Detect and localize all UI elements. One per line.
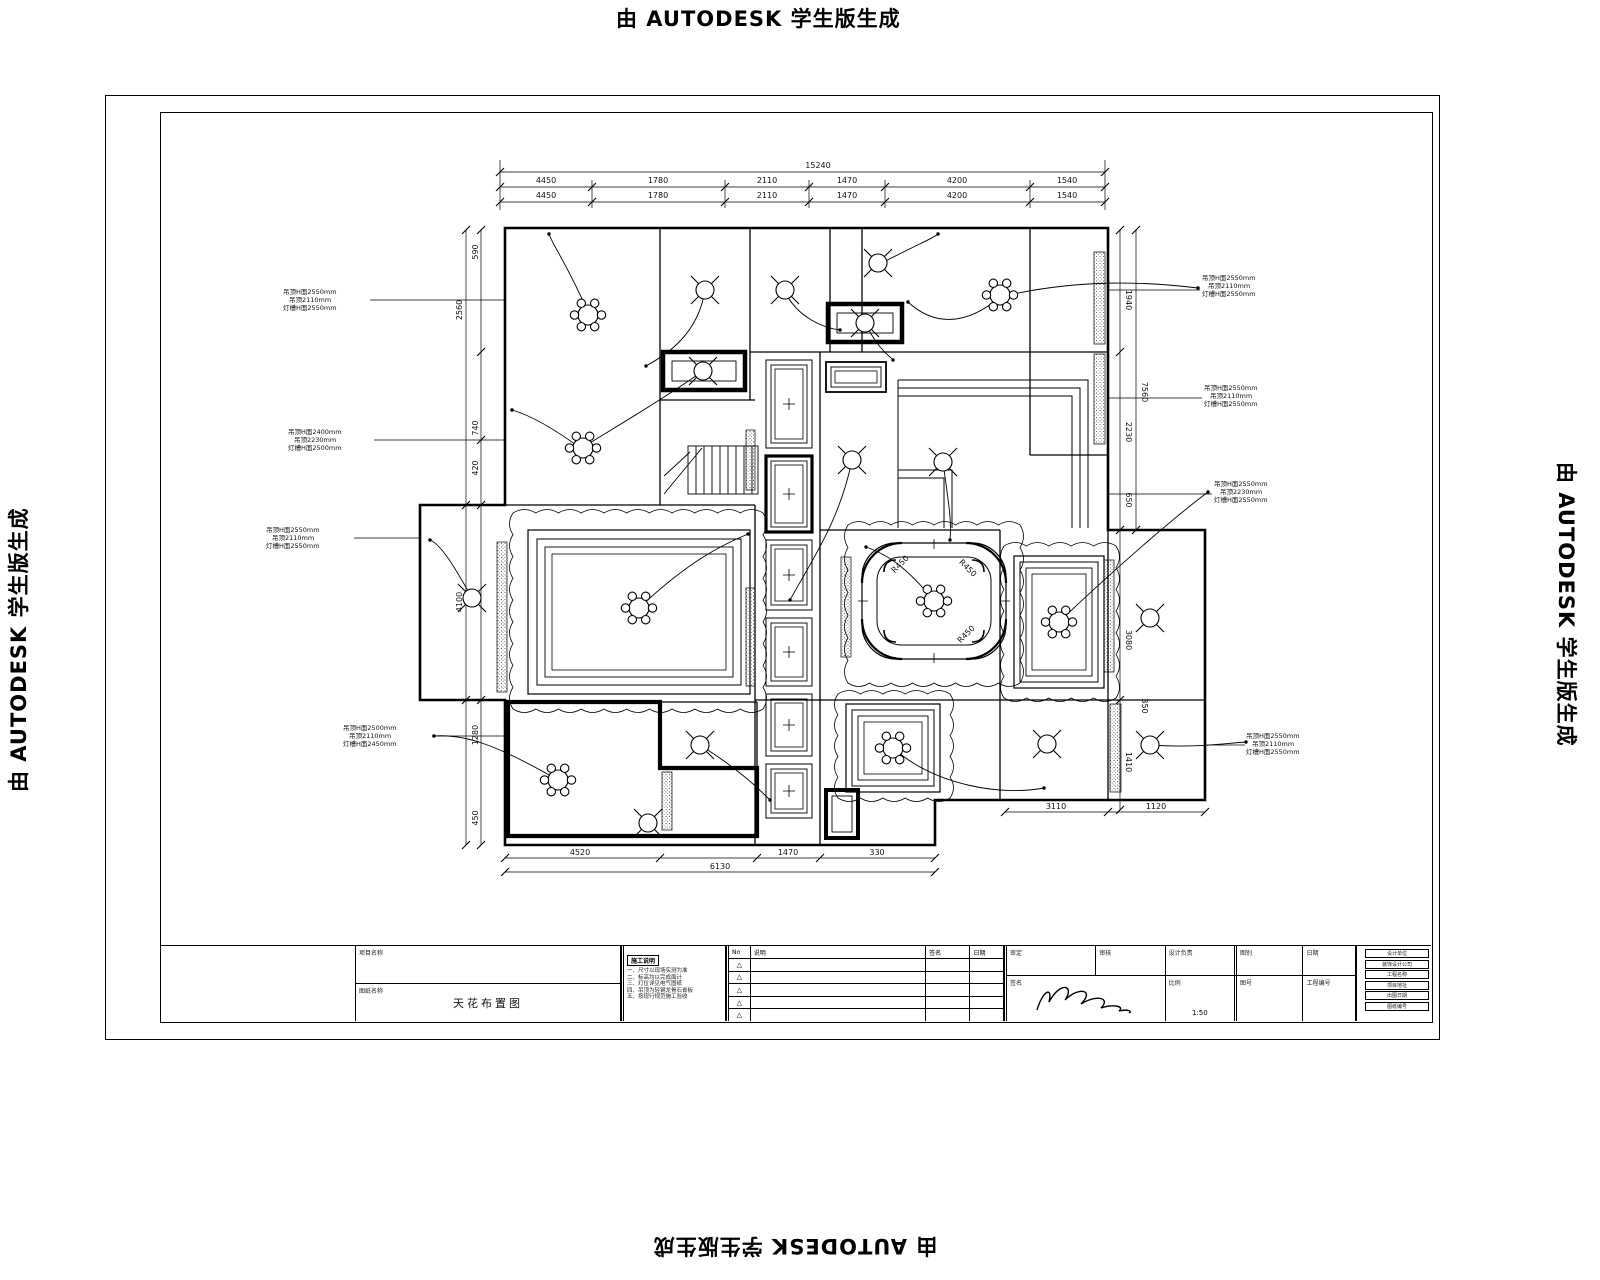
revision-col-desc: 说明 bbox=[751, 946, 926, 958]
approval-cell-图别: 图别 bbox=[1234, 946, 1303, 975]
dimension-text: 2230 bbox=[1124, 422, 1133, 442]
approval-block: 审定审核设计负责图别日期 签名比例1:50图号工程编号 bbox=[1004, 946, 1356, 1021]
signature bbox=[1031, 980, 1141, 1018]
approval-label: 图别 bbox=[1240, 948, 1252, 957]
approval-cell-审核: 审核 bbox=[1096, 946, 1165, 975]
dimension-text: 3110 bbox=[1046, 802, 1066, 811]
approval-label: 设计负责 bbox=[1169, 948, 1193, 957]
approval-label: 审定 bbox=[1010, 948, 1022, 957]
revision-row: △ bbox=[729, 972, 1003, 985]
dimension-text: 1470 bbox=[837, 176, 857, 185]
chandelier-symbol bbox=[570, 299, 605, 331]
dimension-text: 1940 bbox=[1124, 290, 1133, 310]
revision-col-sign: 签名 bbox=[926, 946, 970, 958]
downlight-symbol bbox=[634, 809, 662, 837]
dimension-text: 1120 bbox=[1146, 802, 1166, 811]
corridor-panels bbox=[766, 360, 812, 818]
boxed-vent-units bbox=[663, 304, 902, 838]
cad-plot-page: { "watermark": { "text": "由 AUTODESK 学生版… bbox=[0, 0, 1600, 1280]
approval-cell-审定: 审定 bbox=[1007, 946, 1096, 975]
downlight-symbol bbox=[1136, 731, 1164, 759]
revision-row: △ bbox=[729, 959, 1003, 972]
company-info-row: 出图日期 bbox=[1365, 991, 1429, 1000]
company-info-row: 项目地址 bbox=[1365, 981, 1429, 990]
balcony-heavy-border bbox=[508, 702, 757, 836]
downlight-symbol bbox=[771, 276, 799, 304]
company-info-row: 设计单位 bbox=[1365, 949, 1429, 958]
chandelier-symbol bbox=[916, 585, 951, 617]
approval-cell-工程编号: 工程编号 bbox=[1303, 976, 1355, 1021]
revision-row: △ bbox=[729, 997, 1003, 1010]
dimension-text: 2110 bbox=[757, 191, 777, 200]
dimension-text: 1280 bbox=[471, 725, 480, 745]
revision-triangle-icon: △ bbox=[729, 959, 751, 971]
project-name-label: 项目名称 bbox=[359, 948, 383, 957]
dimension-text: 1470 bbox=[837, 191, 857, 200]
dimension-text: 3080 bbox=[1124, 630, 1133, 650]
drawing-title: 天花布置图 bbox=[453, 995, 523, 1011]
downlight-symbol bbox=[686, 731, 714, 759]
dimension-text: 6130 bbox=[710, 862, 730, 871]
dimension-text: 4100 bbox=[455, 592, 464, 612]
family-room-l-coffer bbox=[898, 380, 1088, 528]
revision-col-no: No bbox=[729, 946, 751, 958]
titleblock-name-cell: 项目名称 图纸名称 天花布置图 bbox=[356, 946, 621, 1021]
approval-cell-设计负责: 设计负责 bbox=[1166, 946, 1235, 975]
approval-label: 工程编号 bbox=[1306, 978, 1330, 987]
downlight-symbol bbox=[691, 276, 719, 304]
revision-header: No 说明 签名 日期 bbox=[729, 946, 1003, 959]
chandelier-symbol bbox=[875, 732, 910, 764]
company-info-row: 工程名称 bbox=[1365, 970, 1429, 979]
titleblock-empty-cell bbox=[161, 946, 356, 1021]
revision-triangle-icon: △ bbox=[729, 972, 751, 984]
dimension-text: 4200 bbox=[947, 176, 967, 185]
approval-value: 1:50 bbox=[1166, 1009, 1234, 1017]
approval-label: 图号 bbox=[1240, 978, 1252, 987]
downlight-symbol bbox=[1136, 604, 1164, 632]
dimension-text: 590 bbox=[471, 244, 480, 259]
dimension-text: 350 bbox=[1140, 698, 1149, 713]
dimension-text: 420 bbox=[471, 460, 480, 475]
approval-label: 审核 bbox=[1099, 948, 1111, 957]
downlight-symbol bbox=[864, 249, 892, 277]
downlight-symbol bbox=[929, 448, 957, 476]
approval-cell-比例: 比例1:50 bbox=[1166, 976, 1235, 1021]
downlight-symbol bbox=[838, 446, 866, 474]
downlight-symbol bbox=[1033, 730, 1061, 758]
revision-row: △ bbox=[729, 984, 1003, 997]
stair bbox=[664, 446, 758, 494]
chandelier-symbol bbox=[540, 764, 575, 796]
dimension-text: 15240 bbox=[805, 161, 830, 170]
dimension-text: 1540 bbox=[1057, 176, 1077, 185]
revision-row: △ bbox=[729, 1009, 1003, 1021]
dimension-text: 1410 bbox=[1124, 752, 1133, 772]
chandelier-symbol bbox=[565, 432, 600, 464]
dimension-text: 4200 bbox=[947, 191, 967, 200]
note-line: 五、按现行规范施工验收 bbox=[627, 994, 722, 1001]
approval-cell-签名: 签名 bbox=[1007, 976, 1166, 1021]
ceiling-plan-drawing: 1524044501780211014704200154044501780211… bbox=[0, 0, 1600, 1280]
construction-notes: 施工说明 一、尺寸以现场实测为准二、标高均以完成面计三、灯位详见电气图纸四、吊顶… bbox=[621, 946, 726, 1021]
dimension-text: 1780 bbox=[648, 191, 668, 200]
revision-clouds bbox=[510, 510, 1120, 802]
dimension-text: 740 bbox=[471, 420, 480, 435]
approval-cell-图号: 图号 bbox=[1234, 976, 1303, 1021]
company-info-row: 装饰设计公司 bbox=[1365, 960, 1429, 969]
company-info-stack: 设计单位装饰设计公司工程名称项目地址出图日期图纸编号 bbox=[1356, 946, 1431, 1021]
dimension-text: 650 bbox=[1124, 492, 1133, 507]
dimension-text: 1780 bbox=[648, 176, 668, 185]
revision-triangle-icon: △ bbox=[729, 1009, 751, 1021]
dimension-text: 2560 bbox=[455, 300, 464, 320]
revision-triangle-icon: △ bbox=[729, 984, 751, 996]
notes-title: 施工说明 bbox=[627, 955, 659, 966]
approval-cell-日期: 日期 bbox=[1303, 946, 1355, 975]
revision-col-date: 日期 bbox=[970, 946, 1003, 958]
approval-label: 日期 bbox=[1306, 948, 1318, 957]
dimension-text: 4450 bbox=[536, 191, 556, 200]
approval-label: 签名 bbox=[1010, 978, 1022, 987]
dimension-text: 4520 bbox=[570, 848, 590, 857]
dimension-text: 7560 bbox=[1140, 382, 1149, 402]
curtain-box-hatch bbox=[497, 252, 1121, 830]
dimension-text: 330 bbox=[869, 848, 884, 857]
dimension-text: 4450 bbox=[536, 176, 556, 185]
notes-text: 一、尺寸以现场实测为准二、标高均以完成面计三、灯位详见电气图纸四、吊顶为轻钢龙骨… bbox=[627, 968, 722, 1001]
revision-table: No 说明 签名 日期 △ △ △ △ △ bbox=[726, 946, 1004, 1021]
revision-triangle-icon: △ bbox=[729, 997, 751, 1009]
approval-label: 比例 bbox=[1169, 978, 1181, 987]
drawing-name-label: 图纸名称 bbox=[359, 986, 383, 995]
dimension-text: 2110 bbox=[757, 176, 777, 185]
title-block: 项目名称 图纸名称 天花布置图 施工说明 一、尺寸以现场实测为准二、标高均以完成… bbox=[161, 945, 1431, 1021]
dimension-text: 1540 bbox=[1057, 191, 1077, 200]
dimension-text: 450 bbox=[471, 810, 480, 825]
dimension-text: 1470 bbox=[778, 848, 798, 857]
company-info-row: 图纸编号 bbox=[1365, 1002, 1429, 1011]
